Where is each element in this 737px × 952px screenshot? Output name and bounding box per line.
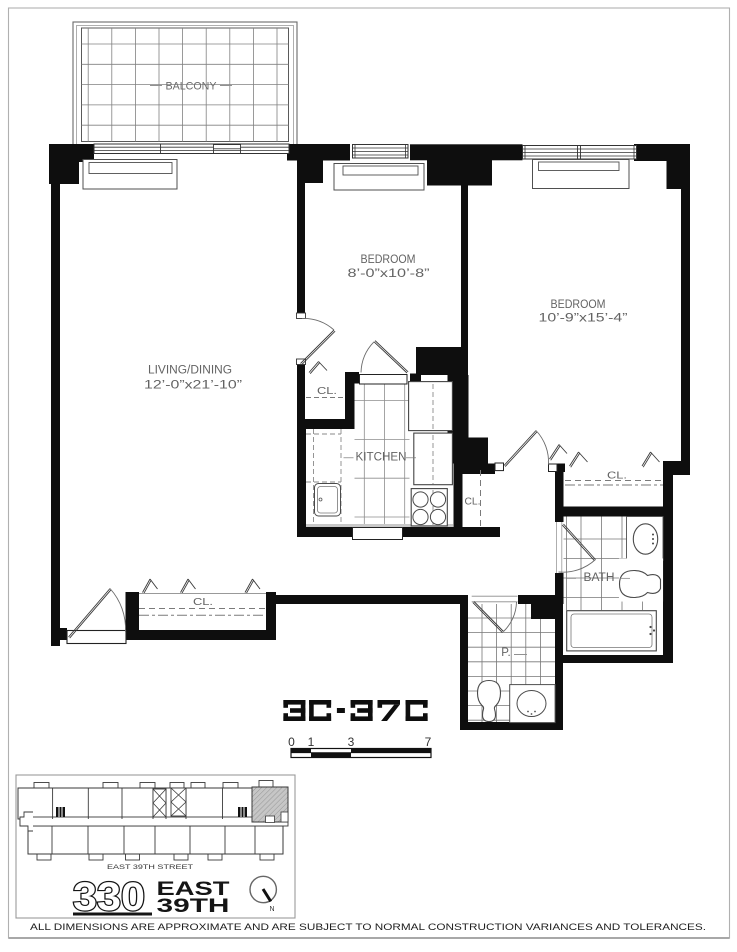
svg-text:0: 0: [288, 735, 295, 749]
svg-text:12’-0”x21’-10”: 12’-0”x21’-10”: [144, 380, 242, 392]
svg-text:LIVING/DINING: LIVING/DINING: [148, 365, 232, 377]
svg-text:BEDROOM: BEDROOM: [361, 254, 416, 266]
svg-text:—: —: [406, 453, 416, 464]
svg-text:BEDROOM: BEDROOM: [551, 299, 606, 311]
svg-text:—: —: [344, 453, 354, 464]
svg-text:BATH: BATH: [584, 572, 615, 584]
svg-text:—: —: [566, 573, 576, 584]
svg-text:330: 330: [73, 875, 145, 919]
svg-text:BALCONY: BALCONY: [166, 81, 218, 93]
svg-text:1: 1: [308, 735, 315, 749]
svg-text:CL.: CL.: [317, 385, 337, 397]
svg-text:KITCHEN: KITCHEN: [356, 452, 407, 464]
svg-text:10’-9”x15’-4”: 10’-9”x15’-4”: [539, 313, 628, 325]
svg-text:3: 3: [348, 735, 355, 749]
svg-text:P.: P.: [501, 647, 510, 659]
svg-text:EAST 39TH STREET: EAST 39TH STREET: [107, 864, 193, 871]
svg-text:39TH: 39TH: [157, 896, 230, 917]
svg-text:CL.: CL.: [193, 596, 213, 608]
svg-text:—: —: [620, 573, 630, 584]
svg-text:7: 7: [425, 735, 432, 749]
svg-text:ALL DIMENSIONS ARE APPROXIMATE: ALL DIMENSIONS ARE APPROXIMATE AND ARE S…: [30, 922, 706, 932]
svg-text:CL.: CL.: [465, 496, 481, 508]
svg-text:CL.: CL.: [607, 470, 627, 482]
svg-text:N: N: [269, 906, 274, 913]
svg-text:8’-0”x10’-8”: 8’-0”x10’-8”: [348, 268, 430, 280]
